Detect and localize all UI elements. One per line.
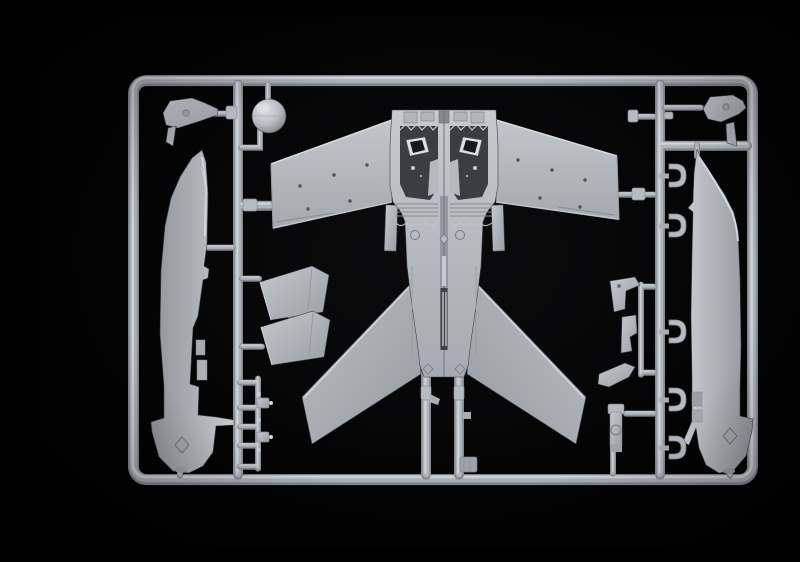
landing-gear-parts [598,277,640,452]
flap-strip-right [491,205,505,251]
sprue-photo-canvas [40,16,800,546]
windscreen-right-part [703,95,746,146]
sprue-photograph [40,16,800,546]
wing-right [496,120,619,220]
fuselage-half-right [683,143,753,474]
intake-plates-part [260,266,330,365]
tail-fin-right [467,280,586,444]
cockpit-recess-left [400,124,438,200]
wing-left [271,120,392,229]
nose-gear-leg [608,404,624,452]
foot-plate [460,457,477,472]
nose-dome-part [252,99,286,133]
cockpit-recess-right [450,124,488,200]
windscreen-left-part [163,98,218,146]
flap-strip-left [384,205,398,251]
fuselage-half-left [151,150,234,473]
windscreen-right-blade [726,122,737,146]
windscreen-left-blade [166,126,176,146]
